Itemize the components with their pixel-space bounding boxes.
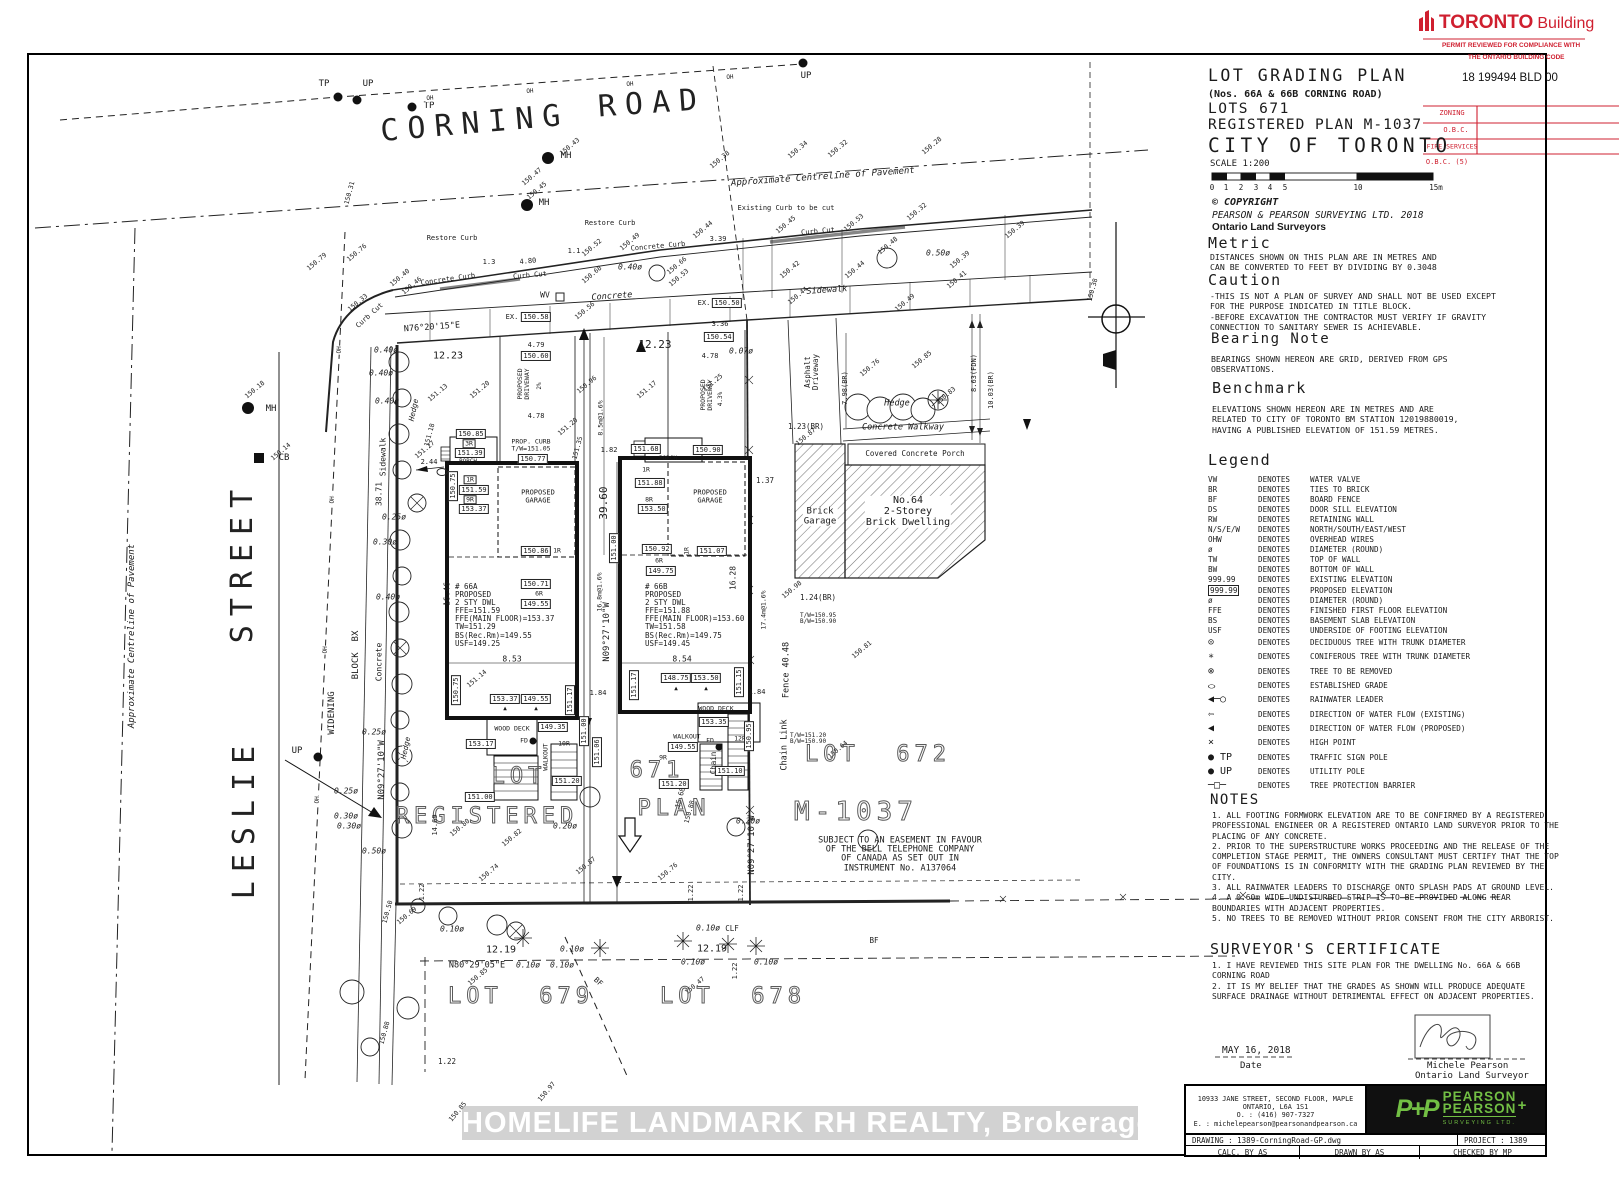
certificate-heading: SURVEYOR'S CERTIFICATE xyxy=(1210,940,1442,958)
plan-label: Existing Curb to be cut xyxy=(738,205,835,213)
firm-address-line1: 10933 JANE STREET, SECOND FLOOR, MAPLE xyxy=(1186,1095,1365,1103)
plan-label: 10.03(BR) xyxy=(988,371,996,409)
legend-row: ◀DENOTESDIRECTION OF WATER FLOW (PROPOSE… xyxy=(1208,721,1548,735)
toronto-building-logo: TORONTO Building xyxy=(1418,8,1594,32)
pearson-name2: PEARSON xyxy=(1443,1101,1517,1116)
plan-scale: SCALE 1:200 xyxy=(1210,159,1270,169)
firm-phone: O. : (416) 907-7327 xyxy=(1186,1111,1365,1119)
plan-label: 151.17 xyxy=(565,685,575,715)
plan-label: MH xyxy=(539,199,550,209)
notes-heading: NOTES xyxy=(1210,792,1260,808)
plan-label: PROPOSED DRIVEWAY xyxy=(517,368,531,399)
plan-label: OH xyxy=(315,795,322,805)
plan-label: 0.25ø xyxy=(362,729,386,738)
plan-label: 3.36 xyxy=(712,321,729,329)
plan-label: 151.00 xyxy=(465,792,495,802)
copyright-line: © COPYRIGHT xyxy=(1212,197,1278,208)
plan-label: WV xyxy=(540,292,550,301)
high-point-icon: × xyxy=(1208,737,1214,748)
legend-row: 999.99DENOTESEXISTING ELEVATION xyxy=(1208,575,1548,585)
legend-row: øDENOTESDIAMETER (ROUND) xyxy=(1208,545,1548,555)
legend-rows: VWDENOTESWATER VALVEBRDENOTESTIES TO BRI… xyxy=(1208,474,1548,793)
plan-label: 151.06 xyxy=(592,737,602,767)
plan-label: OH xyxy=(323,645,330,655)
plan-label: WOOD DECK xyxy=(698,705,733,712)
plan-label: 149.35 xyxy=(538,722,568,732)
text-item: 2. IT IS MY BELIEF THAT THE GRADES AS SH… xyxy=(1212,982,1558,1003)
plan-label: OH xyxy=(337,345,344,355)
plan-label: 8.5m@1.6% xyxy=(597,400,604,435)
plan-label: 4.78 xyxy=(528,413,545,421)
legend-row: ⇦DENOTESDIRECTION OF WATER FLOW (EXISTIN… xyxy=(1208,707,1548,721)
credits-row: CALC. BY AS DRAWN BY AS CHECKED BY MP xyxy=(1186,1145,1545,1159)
drawing-row: DRAWING : 1389-CorningRoad-GP.dwg PROJEC… xyxy=(1186,1133,1545,1145)
plan-city: CITY OF TORONTO xyxy=(1208,134,1452,157)
plan-label: 12.19 xyxy=(697,945,727,956)
plan-label: 153.50 xyxy=(691,673,721,683)
pearson-plus: + xyxy=(1518,1100,1528,1112)
plan-label: 0.20ø xyxy=(553,823,577,832)
tree-removed-icon: ⊗ xyxy=(1208,666,1214,677)
plan-title: LOT GRADING PLAN xyxy=(1208,66,1407,85)
plan-label: # 66B PROPOSED 2 STY DWL FFE=151.88 FFE(… xyxy=(645,583,744,648)
plan-label: CLF xyxy=(725,925,739,933)
plan-subtitle: (Nos. 66A & 66B CORNING ROAD) xyxy=(1208,89,1383,100)
scale-tick: 3 xyxy=(1254,183,1259,192)
scale-tick: 0 xyxy=(1210,183,1215,192)
pearson-subtitle: SURVEYING LTD. xyxy=(1443,1116,1517,1129)
plan-label: 1R xyxy=(642,466,650,473)
firm-address: 10933 JANE STREET, SECOND FLOOR, MAPLE O… xyxy=(1186,1086,1367,1133)
pearson-logo: P+P PEARSON PEARSON + SURVEYING LTD. xyxy=(1367,1086,1545,1133)
plan-label: 0.10ø xyxy=(440,926,464,935)
plan-label: 0.10ø xyxy=(550,962,574,971)
bearing-note-body: BEARINGS SHOWN HEREON ARE GRID, DERIVED … xyxy=(1211,354,1448,375)
plan-label: 150.60 xyxy=(521,351,551,361)
rainwater-leader-icon: ◀─○ xyxy=(1208,694,1226,705)
project-number: PROJECT : 1389 xyxy=(1457,1135,1545,1145)
legend-row: BRDENOTESTIES TO BRICK xyxy=(1208,484,1548,494)
plan-label: 150.77 xyxy=(518,454,548,464)
plan-label: Concrete xyxy=(376,643,385,682)
plan-label: 39.60 xyxy=(598,486,610,519)
certificate-date-label: Date xyxy=(1240,1061,1262,1071)
text-item: 1. ALL FOOTING FORMWORK ELEVATION ARE TO… xyxy=(1212,811,1560,842)
plan-label: UP xyxy=(292,747,303,757)
plan-label: Chain Link xyxy=(780,719,789,770)
calc-by: CALC. BY AS xyxy=(1186,1146,1299,1159)
plan-label: 2.44 xyxy=(421,459,438,467)
plan-label: 1.24(BR) xyxy=(800,594,836,602)
legend-row: N/S/E/WDENOTESNORTH/SOUTH/EAST/WEST xyxy=(1208,524,1548,534)
permit-compliance-line2: THE ONTARIO BUILDING CODE xyxy=(1468,54,1564,61)
plan-label: 0.25ø xyxy=(334,788,358,797)
plan-label: STREET xyxy=(227,481,259,643)
utility-pole-icon: ● UP xyxy=(1208,766,1232,777)
plan-label: 0.20ø xyxy=(736,818,760,827)
deciduous-tree-icon: ⊙ xyxy=(1208,637,1214,648)
plan-label: 0.50ø xyxy=(362,848,386,857)
plan-label: 0.40ø xyxy=(374,347,398,356)
plan-label: 148.75 xyxy=(661,673,691,683)
plan-label: 14.69 xyxy=(432,814,440,835)
certificate-date: MAY 16, 2018 xyxy=(1222,1045,1291,1056)
legend-row: BWDENOTESBOTTOM OF WALL xyxy=(1208,565,1548,575)
plan-label: 151.17 xyxy=(629,670,639,700)
plan-label: 10R xyxy=(558,740,570,747)
surveyor-title: Ontario Land Surveyor xyxy=(1415,1071,1529,1081)
plan-label: 1R xyxy=(553,547,561,554)
coniferous-tree-icon: ∗ xyxy=(1208,651,1214,662)
plan-label: 153.50 xyxy=(638,504,668,514)
plan-label: SUBJECT TO AN EASEMENT IN FAVOUR OF THE … xyxy=(818,837,982,874)
drawing-name: DRAWING : 1389-CorningRoad-GP.dwg xyxy=(1192,1135,1457,1145)
plan-label: 0.10ø xyxy=(516,962,540,971)
water-flow-existing-icon: ⇦ xyxy=(1208,709,1214,720)
plan-label: M-1037 xyxy=(794,798,918,826)
plan-label: EX. xyxy=(698,300,711,308)
legend-row: FFEDENOTESFINISHED FIRST FLOOR ELEVATION xyxy=(1208,605,1548,615)
plan-label: 151.10 xyxy=(715,766,745,776)
bearing-note-heading: Bearing Note xyxy=(1211,331,1330,347)
plan-label: Hedge xyxy=(884,399,910,408)
plan-label: UP xyxy=(801,72,812,82)
plan-label: LOT 679 xyxy=(448,985,594,1009)
firm-title-block: 10933 JANE STREET, SECOND FLOOR, MAPLE O… xyxy=(1184,1084,1547,1157)
plan-label: 0.30ø xyxy=(337,823,361,832)
plan-label: 16.28 xyxy=(730,566,739,590)
copyright-firm: PEARSON & PEARSON SURVEYING LTD. 2018 xyxy=(1212,210,1424,221)
plan-label: 0.30ø xyxy=(334,813,358,822)
legend-row: øDENOTESDIAMETER (ROUND) xyxy=(1208,595,1548,605)
plan-label: 153.37 xyxy=(459,504,489,514)
plan-label: 12.23 xyxy=(638,339,671,351)
legend-heading: Legend xyxy=(1208,451,1271,469)
legend-row: DSDENOTESDOOR SILL ELEVATION xyxy=(1208,504,1548,514)
plan-label: N09°27'10"W xyxy=(378,740,388,800)
plan-label: 151.00 xyxy=(609,533,619,563)
legend-row: ◀─○DENOTESRAINWATER LEADER xyxy=(1208,693,1548,707)
plan-label: 150.86 xyxy=(521,546,551,556)
plan-label: 153.35 xyxy=(699,717,729,727)
scale-tick: 1 xyxy=(1224,183,1229,192)
legend-row: BFDENOTESBOARD FENCE xyxy=(1208,494,1548,504)
plan-label: 4.80 xyxy=(519,258,536,267)
logo-toronto-text: TORONTO xyxy=(1439,13,1533,32)
plan-label: 1.1 xyxy=(568,248,581,256)
plan-label: LOT xyxy=(492,765,547,789)
tree-protection-icon: ─□─ xyxy=(1208,780,1226,791)
copyright-ols: Ontario Land Surveyors xyxy=(1212,222,1326,233)
legend-row: USFDENOTESUNDERSIDE OF FOOTING ELEVATION xyxy=(1208,625,1548,635)
plan-label: FD xyxy=(706,737,714,744)
plan-label: 1R xyxy=(683,547,690,555)
plan-label: LOT 678 xyxy=(660,985,806,1009)
plan-label: T/W=151.05 xyxy=(511,445,550,452)
plan-label: Brick Garage xyxy=(803,507,838,526)
plan-label: 151.88 xyxy=(635,478,665,488)
plan-label: 149.55 xyxy=(668,742,698,752)
plan-label: OH xyxy=(330,495,337,505)
pearson-names: PEARSON PEARSON + SURVEYING LTD. xyxy=(1443,1091,1517,1129)
plan-label: 1.37 xyxy=(756,477,774,485)
scale-tick: 10 xyxy=(1353,183,1362,192)
plan-label: 1.84 xyxy=(749,689,766,697)
plan-label: ZONING xyxy=(1439,110,1464,118)
plan-label: 0.10ø xyxy=(754,959,778,968)
plan-label: 151.00 xyxy=(579,716,589,746)
plan-label: 150.54 xyxy=(704,332,734,342)
plan-label: 151.20 xyxy=(552,776,582,786)
plan-label: 12.23 xyxy=(433,352,463,363)
plan-label: 0.40ø xyxy=(618,264,642,273)
plan-label: 1.22 xyxy=(738,885,746,902)
water-flow-proposed-icon: ◀ xyxy=(1208,723,1214,734)
plan-label: 3.39 xyxy=(710,236,727,244)
plan-label: 0.40ø xyxy=(375,398,399,407)
text-item: 3. ALL RAINWATER LEADERS TO DISCHARGE ON… xyxy=(1212,883,1560,893)
metric-heading: Metric xyxy=(1208,234,1271,252)
traffic-pole-icon: ● TP xyxy=(1208,752,1232,763)
text-item: 5. NO TREES TO BE REMOVED WITHOUT PRIOR … xyxy=(1212,914,1560,924)
checked-by: CHECKED BY MP xyxy=(1419,1146,1545,1159)
plan-label: PORCH xyxy=(459,459,477,465)
plan-label: N80°29'05"E xyxy=(449,961,505,970)
plan-label: Chain xyxy=(710,752,718,775)
plan-label: 0.50ø xyxy=(926,250,950,259)
plan-label: 1.22 xyxy=(419,884,427,901)
caution-body: -THIS IS NOT A PLAN OF SURVEY AND SHALL … xyxy=(1210,291,1496,332)
lot-grading-plan-page: CORNINGROADLESLIESTREETApproximate Centr… xyxy=(0,0,1619,1190)
established-grade-icon: ○ xyxy=(1208,682,1215,690)
plan-label: 0.10ø xyxy=(681,959,705,968)
notes-list: 1. ALL FOOTING FORMWORK ELEVATION ARE TO… xyxy=(1212,811,1560,924)
plan-label: FD xyxy=(520,737,528,744)
scale-tick: 4 xyxy=(1268,183,1273,192)
plan-label: 8.53 xyxy=(502,656,521,665)
plan-label: TP xyxy=(424,102,435,112)
scale-tick: 15m xyxy=(1429,183,1443,192)
plan-label: 0.07ø xyxy=(729,348,753,357)
legend-row: ×DENOTESHIGH POINT xyxy=(1208,736,1548,750)
plan-label: Covered Concrete Porch xyxy=(865,450,964,458)
logo-building-text: Building xyxy=(1537,16,1594,32)
legend-row: RWDENOTESRETAINING WALL xyxy=(1208,514,1548,524)
plan-label: ▲ xyxy=(534,706,538,712)
plan-label: 671 xyxy=(630,759,685,783)
plan-label: Restore Curb xyxy=(427,235,478,243)
plan-label: UP xyxy=(363,80,374,90)
plan-label: 153.37 xyxy=(490,694,520,704)
plan-registered: REGISTERED PLAN M-1037 xyxy=(1208,117,1422,133)
plan-label: 2% xyxy=(537,382,543,389)
plan-label: T/W=150.95 B/W=150.90 xyxy=(800,613,836,626)
benchmark-body: ELEVATIONS SHOWN HEREON ARE IN METRES AN… xyxy=(1212,404,1458,435)
plan-label: 0.30ø xyxy=(373,539,397,548)
plan-label: 150.75 xyxy=(451,675,461,705)
plan-label: ▲ xyxy=(704,686,708,692)
plan-label: WIDENING xyxy=(328,691,338,734)
firm-address-line2: ONTARIO, L6A 1S1 xyxy=(1186,1103,1365,1111)
plan-label: N09°27'10"W xyxy=(603,602,613,662)
plan-label: WALKOUT xyxy=(673,733,700,740)
plan-label: TP xyxy=(319,80,330,90)
plan-label: ▲ xyxy=(674,686,678,692)
plan-label: LESLIE xyxy=(229,737,261,899)
surveyor-name: Michele Pearson xyxy=(1427,1061,1508,1071)
plan-label: 1.23(BR) xyxy=(788,423,824,431)
plan-label: MH xyxy=(266,405,277,415)
plan-label: 7.98(BR) xyxy=(842,371,850,405)
plan-label: 38.71 xyxy=(376,482,385,506)
pearson-monogram: P+P xyxy=(1396,1095,1438,1124)
plan-label: 150.95 xyxy=(744,721,754,751)
plan-label: 151.68 xyxy=(631,444,661,454)
plan-label: 150.92 xyxy=(642,544,672,554)
plan-label: LOT 672 xyxy=(805,743,951,767)
plan-label: ▲ xyxy=(503,706,507,712)
text-item: 4. A 0.60m WIDE UNDISTURBED STRIP IS TO … xyxy=(1212,893,1560,914)
plan-label: 149.55 xyxy=(521,694,551,704)
plan-label: 1.22 xyxy=(438,1058,456,1066)
certificate-list: 1. I HAVE REVIEWED THIS SITE PLAN FOR TH… xyxy=(1212,961,1558,1002)
plan-label: REGISTERED xyxy=(396,805,578,829)
permit-number: 18 199494 BLD 00 xyxy=(1462,72,1558,84)
drawn-by: DRAWN BY AS xyxy=(1299,1146,1419,1159)
plan-label: PROPOSED GARAGE xyxy=(693,489,727,504)
plan-label: 153.17 xyxy=(466,739,496,749)
plan-label: 0.40ø xyxy=(376,594,400,603)
scale-tick: 5 xyxy=(1283,183,1288,192)
plan-label: 151.15 xyxy=(734,667,744,697)
plan-label: Concrete Walkway xyxy=(862,423,944,432)
plan-label: Restore Curb xyxy=(585,220,636,228)
plan-label: Fence 40.48 xyxy=(782,642,791,698)
plan-label: Approximate Centreline of Pavement xyxy=(128,543,138,729)
text-item: 1. I HAVE REVIEWED THIS SITE PLAN FOR TH… xyxy=(1212,961,1558,982)
plan-label: 0.10ø xyxy=(560,946,584,955)
scale-tick: 2 xyxy=(1239,183,1244,192)
plan-label: 1.84 xyxy=(590,690,607,698)
plan-label: 151.39 xyxy=(455,448,485,458)
plan-label: 8.54 xyxy=(672,656,691,665)
legend-row: OHWDENOTESOVERHEAD WIRES xyxy=(1208,535,1548,545)
plan-label: 0.40ø xyxy=(369,370,393,379)
plan-label: 151.59 xyxy=(459,485,489,495)
plan-label: 0.25ø xyxy=(382,514,406,523)
plan-label: PORCH xyxy=(659,456,677,462)
plan-label: 17.4m@1.6% xyxy=(760,590,767,629)
legend-row: ─□─DENOTESTREE PROTECTION BARRIER xyxy=(1208,778,1548,792)
plan-label: OH xyxy=(425,95,435,102)
plan-label: 8.63(FDN) xyxy=(971,354,979,392)
plan-label: PLAN xyxy=(638,797,711,821)
plan-label: 4.79 xyxy=(528,342,545,350)
legend-row: BSDENOTESBASEMENT SLAB ELEVATION xyxy=(1208,615,1548,625)
plan-label: BLOCK BX xyxy=(352,631,362,680)
text-item: 2. PRIOR TO THE SUPERSTRUCTURE WORKS PRO… xyxy=(1212,842,1560,883)
plan-label: 4.3% xyxy=(718,392,724,406)
toronto-city-icon xyxy=(1418,8,1435,32)
plan-label: 1.3 xyxy=(483,259,496,267)
brokerage-watermark: HOMELIFE LANDMARK RH REALTY, Brokerage xyxy=(462,1106,1138,1140)
plan-label: O.B.C. (5) xyxy=(1426,159,1468,167)
legend-row: ⊙DENOTESDECIDUOUS TREE WITH TRUNK DIAMET… xyxy=(1208,636,1548,650)
plan-label: EX. xyxy=(506,314,519,322)
plan-label: Asphalt Driveway xyxy=(804,354,820,390)
legend-row: ⊗DENOTESTREE TO BE REMOVED xyxy=(1208,664,1548,678)
plan-label: 150.58 xyxy=(521,312,551,322)
plan-label: # 66A PROPOSED 2 STY DWL FFE=151.59 FFE(… xyxy=(455,583,554,648)
plan-label: BF xyxy=(869,937,878,945)
plan-label: 0.10ø xyxy=(696,925,720,934)
plan-label: OH xyxy=(725,74,735,81)
legend-row: TWDENOTESTOP OF WALL xyxy=(1208,555,1548,565)
plan-label: 1R xyxy=(464,475,477,484)
plan-label: 8R xyxy=(645,496,653,503)
legend-row: ○DENOTESESTABLISHED GRADE xyxy=(1208,678,1548,692)
plan-label: No.64 2-Storey Brick Dwelling xyxy=(865,496,951,528)
benchmark-heading: Benchmark xyxy=(1212,379,1307,397)
permit-compliance-line1: PERMIT REVIEWED FOR COMPLIANCE WITH xyxy=(1442,42,1580,49)
plan-label: PROPOSED GARAGE xyxy=(521,489,555,504)
legend-row: VWDENOTESWATER VALVE xyxy=(1208,474,1548,484)
plan-label: 1.22 xyxy=(732,963,740,980)
metric-body: DISTANCES SHOWN ON THIS PLAN ARE IN METR… xyxy=(1210,252,1437,273)
plan-label: OH xyxy=(525,88,535,95)
plan-label: 150.75 xyxy=(448,471,458,501)
caution-heading: Caution xyxy=(1208,271,1282,289)
plan-label: 150.50 xyxy=(712,298,742,308)
plan-label: WOOD DECK xyxy=(494,725,529,732)
plan-lots: LOTS 671 xyxy=(1208,101,1290,117)
plan-label: 150.90 xyxy=(693,445,723,455)
plan-label: ROAD xyxy=(597,84,707,124)
plan-label: 16.46 xyxy=(444,582,453,606)
legend-row: 999.99DENOTESPROPOSED ELEVATION xyxy=(1208,585,1548,595)
plan-label: 150.85 xyxy=(456,429,486,439)
plan-label: 4.78 xyxy=(702,353,719,361)
plan-label: Sidewalk xyxy=(380,438,389,477)
plan-label: OH xyxy=(625,81,635,88)
plan-label: 151.07 xyxy=(697,546,727,556)
legend-row: ● UPDENOTESUTILITY POLE xyxy=(1208,764,1548,778)
plan-label: 6R xyxy=(655,557,663,564)
plan-label: 12.19 xyxy=(486,946,516,957)
firm-email: E. : michelepearson@pearsonandpearson.ca xyxy=(1186,1120,1365,1128)
legend-row: ● TPDENOTESTRAFFIC SIGN POLE xyxy=(1208,750,1548,764)
plan-label: 149.75 xyxy=(646,566,676,576)
legend-row: ∗DENOTESCONIFEROUS TREE WITH TRUNK DIAME… xyxy=(1208,650,1548,664)
plan-label: 1.82 xyxy=(601,447,618,455)
plan-label: 1.22 xyxy=(688,885,696,902)
